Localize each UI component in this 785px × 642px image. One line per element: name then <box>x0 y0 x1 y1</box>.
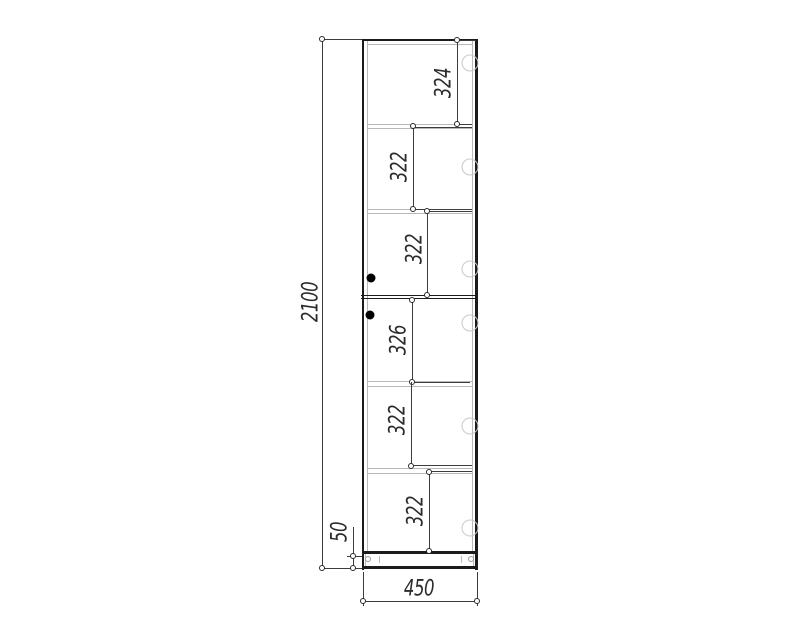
cabinet-right-edge <box>475 39 478 570</box>
leveling-foot-circle <box>365 556 371 562</box>
dim-height-label: 2100 <box>300 282 323 322</box>
hinge-circle <box>461 519 478 536</box>
dim-endpoint-dot <box>474 598 480 604</box>
dim-endpoint-dot <box>426 548 432 554</box>
dim-endpoint-dot <box>319 565 325 571</box>
hinge-circle <box>461 315 478 332</box>
cabinet-left-edge <box>362 39 365 570</box>
shelf-line <box>368 213 472 214</box>
dim-width-label: 450 <box>404 578 434 601</box>
shelf-line <box>368 128 472 129</box>
leveling-foot-circle <box>468 556 474 562</box>
technical-drawing-canvas: 2100 50 450 324 322 322 326 322 322 <box>0 0 785 642</box>
dim-endpoint-dot <box>350 553 356 559</box>
shelf-line <box>368 473 472 474</box>
door-divider-line <box>361 298 478 300</box>
dim-section-ext <box>429 471 472 472</box>
door-knob <box>366 310 375 319</box>
dim-section-label: 322 <box>405 496 428 526</box>
dim-endpoint-dot <box>408 463 414 469</box>
dim-section-label: 324 <box>433 68 456 98</box>
dim-section-ext <box>413 209 472 210</box>
dim-section-label: 322 <box>389 152 412 182</box>
dim-endpoint-dot <box>319 36 325 42</box>
door-divider-line <box>361 295 478 297</box>
dim-endpoint-dot <box>360 598 366 604</box>
shelf-line <box>368 386 472 387</box>
dim-section-line <box>457 40 458 124</box>
shelf-line <box>368 468 472 469</box>
dim-endpoint-dot <box>424 292 430 298</box>
dim-endpoint-dot <box>409 297 415 303</box>
dim-section-label: 326 <box>387 325 410 355</box>
dim-endpoint-dot <box>410 123 416 129</box>
dim-section-line <box>429 471 430 552</box>
plinth-tick <box>379 556 380 563</box>
dim-height-ext-top <box>322 39 362 40</box>
dim-endpoint-dot <box>424 208 430 214</box>
dim-plinth-label: 50 <box>329 522 352 542</box>
dim-section-ext <box>412 382 471 383</box>
dim-section-label: 322 <box>387 405 410 435</box>
dim-endpoint-dot <box>410 206 416 212</box>
dim-endpoint-dot <box>350 565 356 571</box>
dim-section-ext <box>413 127 472 128</box>
hinge-circle <box>461 260 478 277</box>
plinth-tick <box>461 556 462 563</box>
hinge-circle <box>461 158 478 175</box>
cabinet-base-edge <box>362 566 478 570</box>
dim-section-line <box>413 126 414 209</box>
dim-endpoint-dot <box>454 37 460 43</box>
dim-section-line <box>411 382 412 466</box>
dim-section-line <box>412 299 413 382</box>
cabinet-bottom-panel <box>364 551 475 555</box>
dim-section-ext <box>411 465 472 466</box>
hinge-circle <box>461 417 478 434</box>
dim-endpoint-dot <box>426 469 432 475</box>
door-knob <box>366 274 375 283</box>
dim-endpoint-dot <box>409 379 415 385</box>
hinge-circle <box>461 54 478 71</box>
dim-section-label: 322 <box>403 234 426 264</box>
dim-plinth-line <box>353 527 354 569</box>
dim-section-ext <box>427 211 472 212</box>
